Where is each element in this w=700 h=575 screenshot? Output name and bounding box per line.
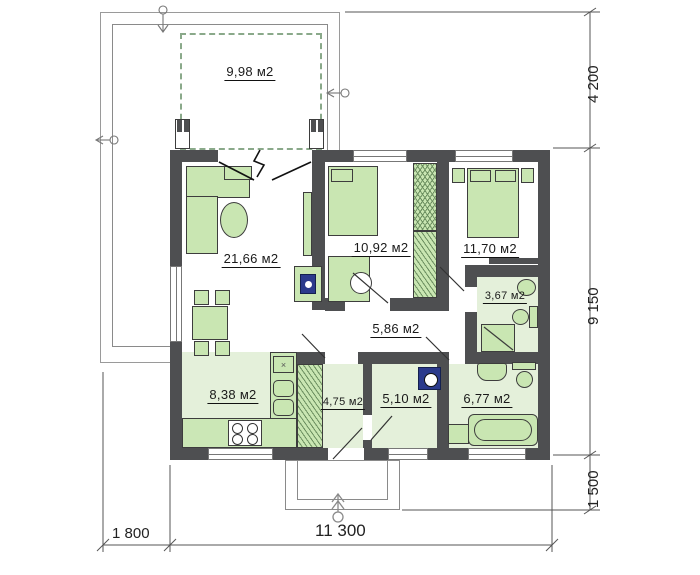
room-label-entry: 4,75 м2 <box>321 396 365 410</box>
nightstand <box>521 168 534 183</box>
pillow <box>470 170 491 182</box>
sofa <box>186 196 218 254</box>
room-label-terrace: 9,98 м2 <box>224 64 275 81</box>
dining-chair <box>194 290 209 305</box>
room-label-hallway: 5,86 м2 <box>370 321 421 338</box>
dining-chair <box>215 341 230 356</box>
fireplace <box>294 266 322 302</box>
bathroom-sink-icon <box>477 363 507 381</box>
column-cap <box>177 120 182 132</box>
window <box>208 448 273 460</box>
nightstand <box>452 168 465 183</box>
window <box>388 448 428 460</box>
sofa-chaise <box>224 166 252 180</box>
fireplace-firebox <box>300 274 316 294</box>
wall-showerroom-left-a <box>465 277 477 287</box>
tv-panel <box>303 192 312 256</box>
wall-entry-utility-b <box>363 440 372 448</box>
dim-4200: 4 200 <box>585 65 602 103</box>
wall-between-bedrooms <box>437 162 449 311</box>
toilet-icon <box>512 309 529 325</box>
wall-hall-entry-a <box>297 352 325 364</box>
dim-1800: 1 800 <box>112 525 150 542</box>
bathtub-icon <box>468 414 538 446</box>
wall-bedroom-bottom-b <box>390 298 437 311</box>
wall-hall-entry-b <box>358 352 443 364</box>
room-label-bedroom-right: 11,70 м2 <box>461 241 519 258</box>
floor-plan: × <box>0 0 700 575</box>
shower-icon <box>481 324 515 352</box>
kitchen-sink-icon <box>273 380 294 397</box>
dining-chair <box>194 341 209 356</box>
room-label-utility: 5,10 м2 <box>380 391 431 408</box>
toilet-icon <box>516 371 533 388</box>
pillow <box>495 170 516 182</box>
window <box>170 266 182 342</box>
coffee-table <box>220 202 248 238</box>
entrance-door-opening <box>328 448 364 460</box>
column-cap <box>311 120 316 132</box>
pillow <box>331 169 353 182</box>
dim-1500: 1 500 <box>585 470 602 508</box>
room-label-bedroom-top: 10,92 м2 <box>352 240 411 257</box>
washing-machine-icon <box>418 367 441 390</box>
room-label-shower-room: 3,67 м2 <box>483 290 527 304</box>
stove-icon <box>228 420 262 446</box>
room-label-living: 21,66 м2 <box>222 251 281 268</box>
kitchen-cabinet: × <box>273 356 294 373</box>
terrace-door-opening <box>218 150 312 162</box>
window <box>468 448 526 460</box>
toilet-tank <box>512 362 536 370</box>
dim-11300: 11 300 <box>315 521 366 541</box>
water-heater <box>448 424 469 444</box>
kitchen-sink-icon <box>273 399 294 416</box>
wardrobe <box>413 231 437 298</box>
tv-stand <box>489 258 538 264</box>
desk-chair <box>350 272 372 294</box>
wall-bedroom2-showerroom <box>465 265 538 277</box>
terrace-column <box>309 119 324 149</box>
room-label-kitchen: 8,38 м2 <box>207 387 258 404</box>
dining-chair <box>215 290 230 305</box>
dim-9150: 9 150 <box>585 287 602 325</box>
window <box>455 150 513 162</box>
window <box>353 150 407 162</box>
porch-inner <box>297 460 388 500</box>
terrace-column <box>175 119 190 149</box>
dining-table <box>192 306 228 340</box>
terrace-dashed-boundary <box>180 33 322 150</box>
wardrobe <box>413 163 437 231</box>
wall-showerroom-bathroom-a <box>443 352 449 364</box>
column-cap <box>318 120 323 132</box>
room-label-bathroom: 6,77 м2 <box>461 391 512 408</box>
toilet-tank <box>529 306 538 328</box>
column-cap <box>184 120 189 132</box>
entry-wardrobe <box>297 364 323 448</box>
